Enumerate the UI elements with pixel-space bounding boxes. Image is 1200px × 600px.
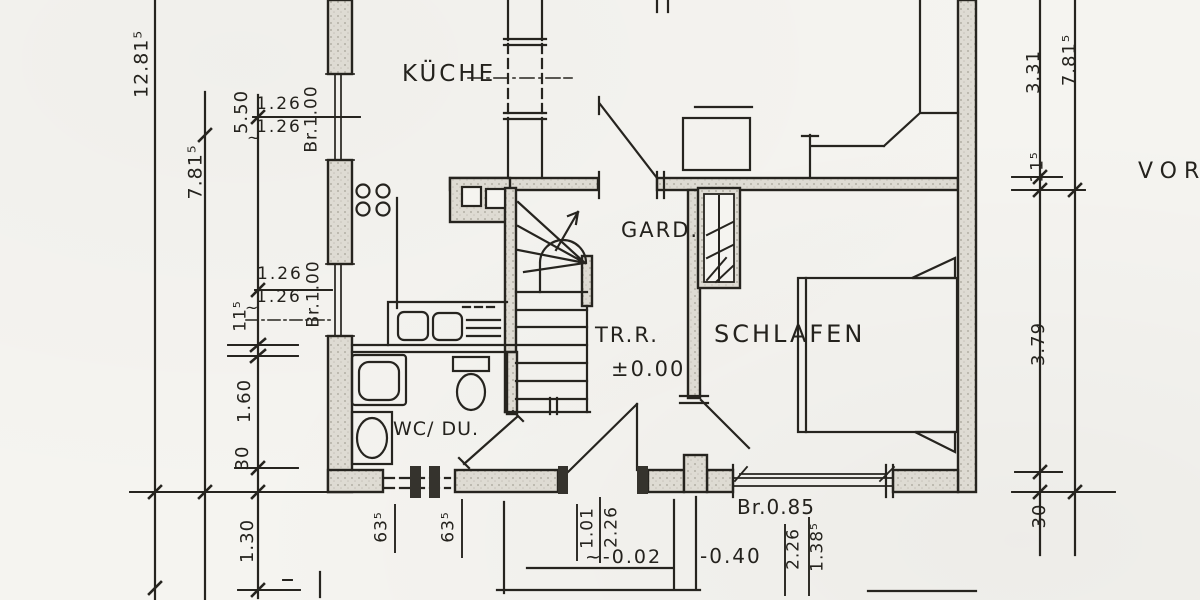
level-annotation-stairs: ±0.00 [611, 359, 685, 380]
entrance-door-leaf [568, 404, 637, 472]
dim-label-379: 3.79 [1030, 322, 1048, 366]
dim-label-window1-breite: Br.1.00 [304, 85, 321, 152]
dim-label-entry-width: 1.01 [580, 507, 597, 549]
bed-corner-triangle [915, 432, 955, 452]
bottom-window-sill [733, 478, 893, 486]
dim-label-130: 1.30 [239, 519, 257, 563]
dim-label-window-1385: 1.38⁵ [810, 522, 827, 572]
sink-bowl [433, 313, 462, 340]
sink-bowl [398, 312, 428, 340]
bedroom-door-leaf [680, 396, 749, 448]
jamb-post [637, 466, 648, 494]
wall-left-segment [328, 160, 352, 264]
dim-label-window-226: 2.26 [786, 528, 803, 570]
dim-label-30-left: 30 [234, 446, 252, 471]
dim-label-331: 3.31 [1025, 50, 1043, 94]
room-label-bath: WC/ DU. [393, 420, 479, 439]
stove-burner [357, 185, 370, 198]
duct-dashed [508, 44, 542, 114]
duct-bars [504, 39, 546, 119]
kitchen-bath-wall [352, 345, 516, 352]
top-wall-door [599, 97, 664, 198]
wall-left-segment [328, 0, 352, 74]
dim-label-window1-b: 1.26 [256, 119, 302, 136]
level-annotation-entry: ~-0.02 [585, 548, 662, 567]
sink-drainer [467, 320, 500, 336]
stove-burner [377, 203, 390, 216]
wall-bottom-segment [328, 470, 383, 492]
dim-label-635-a: 63⁵ [374, 511, 391, 542]
dim-tilde: ~ [247, 130, 262, 146]
level-annotation-terrace: -0.40 [700, 546, 762, 566]
wall-bottom-segment [893, 470, 958, 492]
label-partial-word-vor: VOR [1138, 161, 1200, 183]
room-label-wardrobe: GARD. [621, 220, 699, 241]
dim-label-door-breite: Br.0.85 [737, 497, 815, 517]
duct-column [468, 0, 668, 178]
door-leaf-swing [599, 97, 657, 178]
floor-plan-sheet: KÜCHE GARD. TR.R. ±0.00 SCHLAFEN WC/ DU.… [0, 0, 1200, 600]
dim-label-total-left: 12.81⁵ [133, 30, 152, 98]
dim-label-window2-breite: Br.1.00 [306, 260, 323, 327]
dim-label-entry-height: 2.26 [604, 506, 621, 548]
room-label-kitchen: KÜCHE [402, 63, 496, 86]
top-edge-marks [657, 0, 668, 12]
room-label-bedroom: SCHLAFEN [714, 322, 865, 346]
upper-room [683, 0, 958, 177]
dim-label-30-right: 30 [1031, 504, 1049, 529]
wall-bottom-segment [707, 470, 733, 492]
stove-burner [357, 203, 370, 216]
room-label-stairs: TR.R. [595, 325, 659, 346]
wall-bottom-segment [455, 470, 558, 492]
floor-plan-drawing [0, 0, 1200, 600]
bed-corner-triangle [912, 258, 955, 278]
furniture-rect [683, 118, 750, 170]
dim-label-total-right: 7.81⁵ [1061, 34, 1079, 86]
wall-left-segment [328, 336, 352, 492]
duct-walls [508, 0, 542, 178]
dim-label-window2-b: 1.26 [256, 289, 302, 306]
dim-label-wall-thickness-right: 11⁵ [1030, 151, 1047, 182]
dim-label-inner-left: 7.81⁵ [187, 145, 206, 200]
toilet-bowl [457, 374, 485, 410]
bathroom-fixtures [352, 355, 523, 468]
dim-label-window2-a: 1.26 [257, 266, 303, 283]
dim-label-160: 1.60 [236, 379, 254, 423]
chimney-flue-opening [486, 189, 505, 208]
wall-hall-bedroom-post [684, 455, 707, 492]
bed [798, 278, 957, 432]
corner-chamfer-detail [802, 0, 958, 177]
toilet-cistern [453, 357, 489, 371]
jamb-post [558, 466, 568, 494]
wall-right [958, 0, 976, 492]
stove-burner [377, 185, 390, 198]
jamb-post [429, 466, 440, 498]
chimney-flue-opening [462, 187, 481, 206]
dim-label-635-b: 63⁵ [441, 511, 458, 542]
wall-bottom-segment [648, 470, 684, 492]
dim-label-wall-thickness-left: 11⁵ [233, 300, 250, 331]
shower-tray-inner [359, 362, 399, 400]
bottom-window-jambs [733, 465, 893, 497]
wall-wc-right [507, 352, 517, 414]
washbasin-bowl [357, 418, 387, 458]
dim-label-window1-a: 1.26 [256, 96, 302, 113]
jamb-post [410, 466, 421, 498]
